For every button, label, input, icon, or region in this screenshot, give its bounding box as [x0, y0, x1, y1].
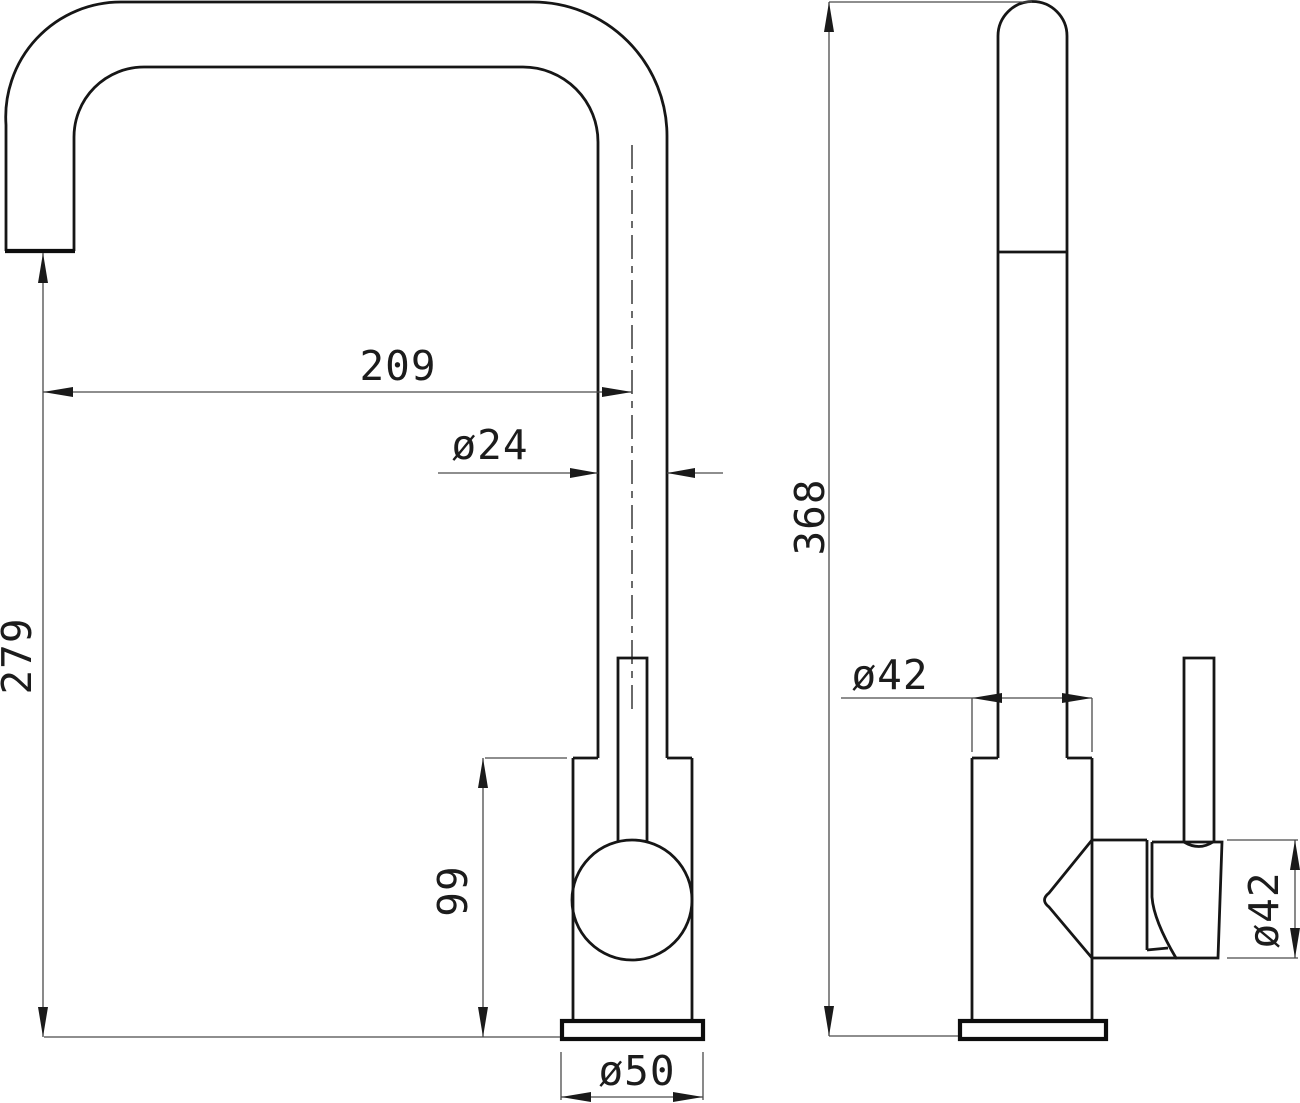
- arrow-valve-dia-bottom: [1290, 928, 1300, 958]
- label-body-height: 99: [429, 865, 477, 916]
- dim-line-overall-height: [829, 2, 1032, 1036]
- dimension-arrows: [38, 2, 1300, 1102]
- arrow-tube-dia-right: [667, 468, 695, 478]
- dim-line-body-height: [483, 758, 567, 1037]
- arrow-body-height-bottom: [478, 1007, 488, 1037]
- body-side-outline: [972, 758, 1092, 1021]
- spout-inner-profile: [74, 67, 598, 758]
- valve-block-side: [1092, 840, 1177, 958]
- arrow-base-dia-right: [673, 1092, 703, 1102]
- spout-outer-profile: [6, 2, 667, 758]
- arrow-outlet-height-bottom: [38, 1007, 48, 1037]
- label-valve-housing-diameter: ø42: [1240, 871, 1288, 948]
- label-outlet-height: 279: [0, 617, 41, 694]
- label-overall-height: 368: [786, 478, 834, 555]
- side-view: [960, 1, 1222, 1039]
- label-body-diameter: ø42: [851, 651, 928, 699]
- pipe-side-profile: [998, 1, 1067, 758]
- arrow-spout-reach-right: [602, 387, 632, 397]
- arrow-body-height-top: [478, 758, 488, 788]
- handle-lever-side: [1184, 658, 1214, 842]
- base-plate-side: [960, 1021, 1106, 1039]
- spout-cone-side: [1045, 840, 1093, 958]
- body-front-outline: [573, 758, 692, 1021]
- arrow-spout-reach-left: [43, 387, 73, 397]
- arrow-overall-height-top: [824, 2, 834, 32]
- handle-cap-side: [1152, 842, 1222, 958]
- arrow-body-dia-right: [1062, 693, 1092, 703]
- label-spout-reach: 209: [359, 342, 436, 390]
- dimension-lines: [43, 2, 1298, 1100]
- arrow-body-dia-left: [972, 693, 1002, 703]
- dim-line-body-diameter: [841, 698, 1092, 752]
- label-base-plate-diameter: ø50: [598, 1047, 675, 1095]
- arrow-overall-height-bottom: [824, 1006, 834, 1036]
- label-spout-tube-diameter: ø24: [451, 421, 528, 469]
- faucet-technical-drawing: 209 ø24 279 368 99 ø50 ø42 ø42: [0, 0, 1300, 1103]
- base-plate-front: [562, 1021, 703, 1039]
- valve-circle-front: [572, 840, 692, 960]
- arrow-valve-dia-top: [1290, 840, 1300, 870]
- arrow-base-dia-left: [561, 1092, 591, 1102]
- technical-drawing-sheet: 209 ø24 279 368 99 ø50 ø42 ø42: [0, 0, 1300, 1103]
- arrow-tube-dia-left: [570, 468, 598, 478]
- front-view: [5, 2, 703, 1039]
- baseline-reference: [44, 1036, 958, 1037]
- arrow-outlet-height-top: [38, 253, 48, 283]
- dimension-labels: 209 ø24 279 368 99 ø50 ø42 ø42: [0, 342, 1288, 1095]
